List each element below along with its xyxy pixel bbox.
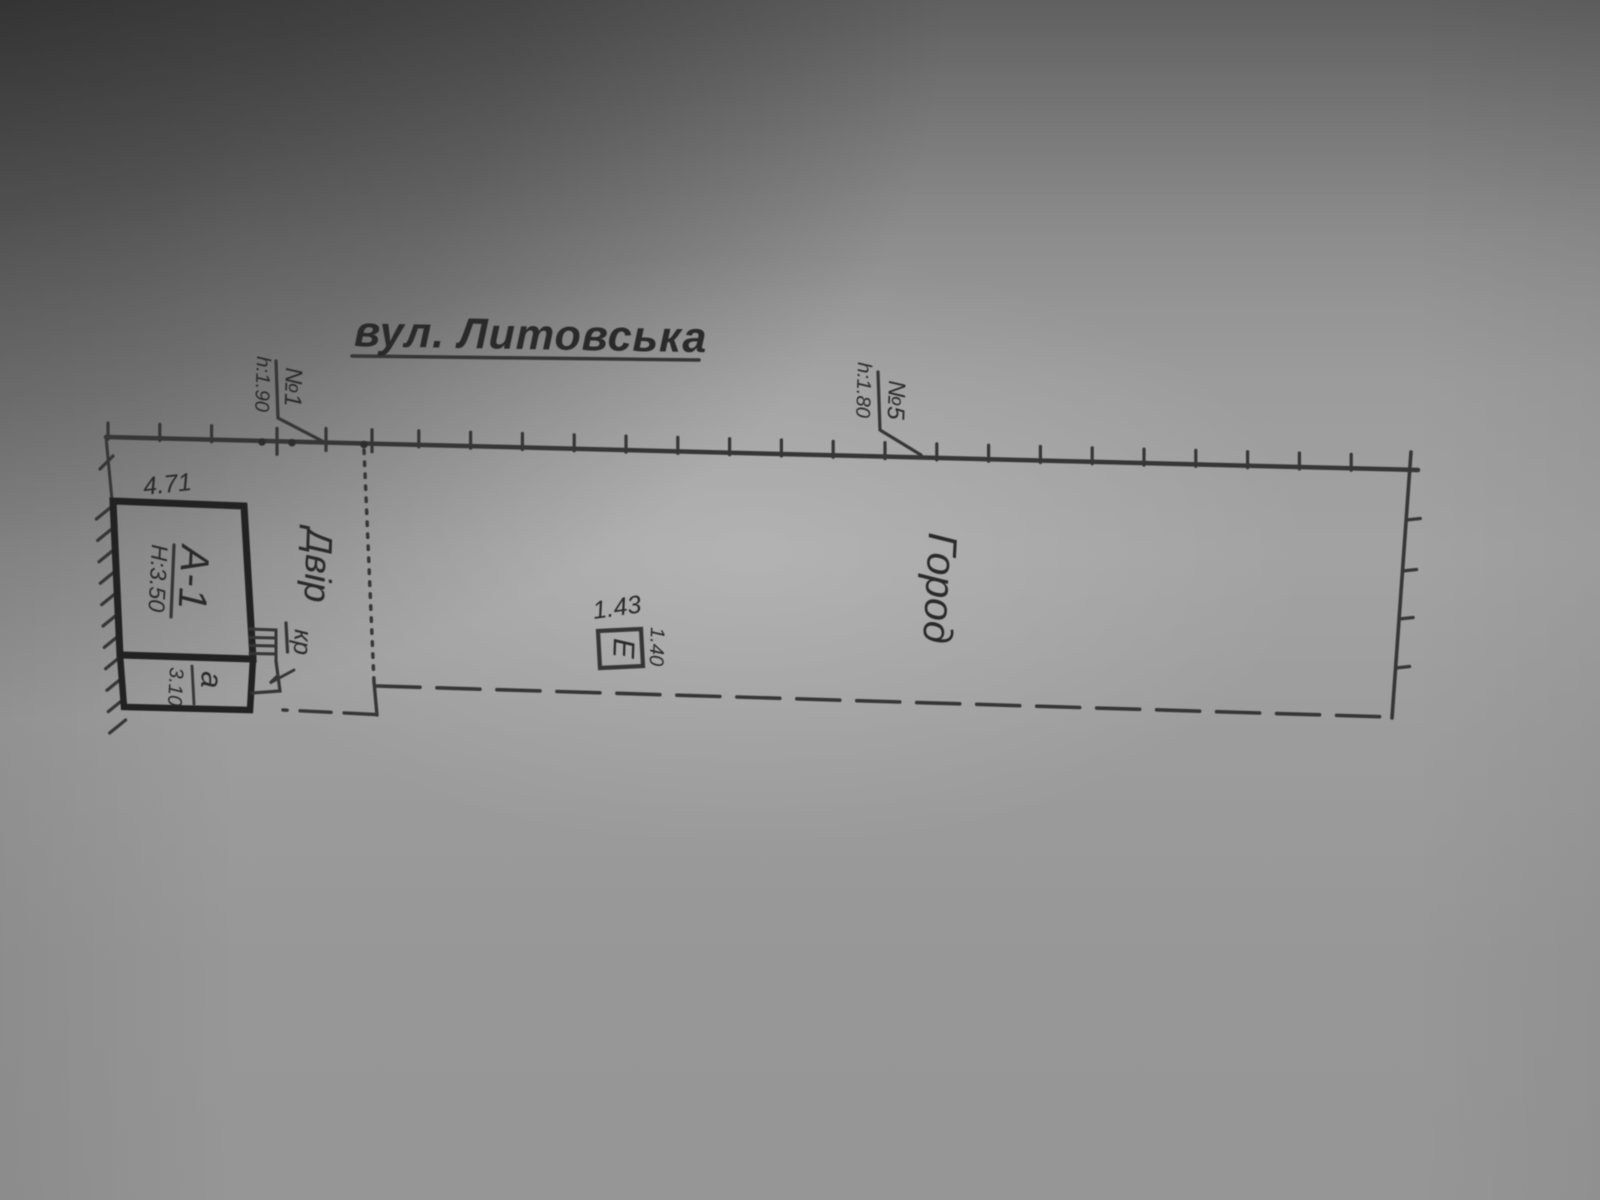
svg-text:4.71: 4.71 <box>142 468 193 501</box>
svg-text:1.43: 1.43 <box>591 590 643 625</box>
svg-text:вул. Литовська: вул. Литовська <box>354 308 708 362</box>
svg-text:Город: Город <box>914 532 966 645</box>
svg-text:А-1: А-1 <box>170 543 217 612</box>
svg-text:h:1.80: h:1.80 <box>851 362 875 418</box>
svg-text:1.40: 1.40 <box>645 627 668 667</box>
svg-text:Е: Е <box>606 638 640 660</box>
svg-text:кр: кр <box>288 629 317 656</box>
svg-text:Н:3.50: Н:3.50 <box>143 544 173 613</box>
svg-text:№1: №1 <box>279 367 307 407</box>
svg-text:3.10: 3.10 <box>163 667 187 707</box>
svg-text:h:1.90: h:1.90 <box>250 356 274 412</box>
svg-text:а: а <box>194 671 228 689</box>
svg-text:№5: №5 <box>882 380 910 421</box>
svg-text:Двір: Двір <box>296 524 340 604</box>
